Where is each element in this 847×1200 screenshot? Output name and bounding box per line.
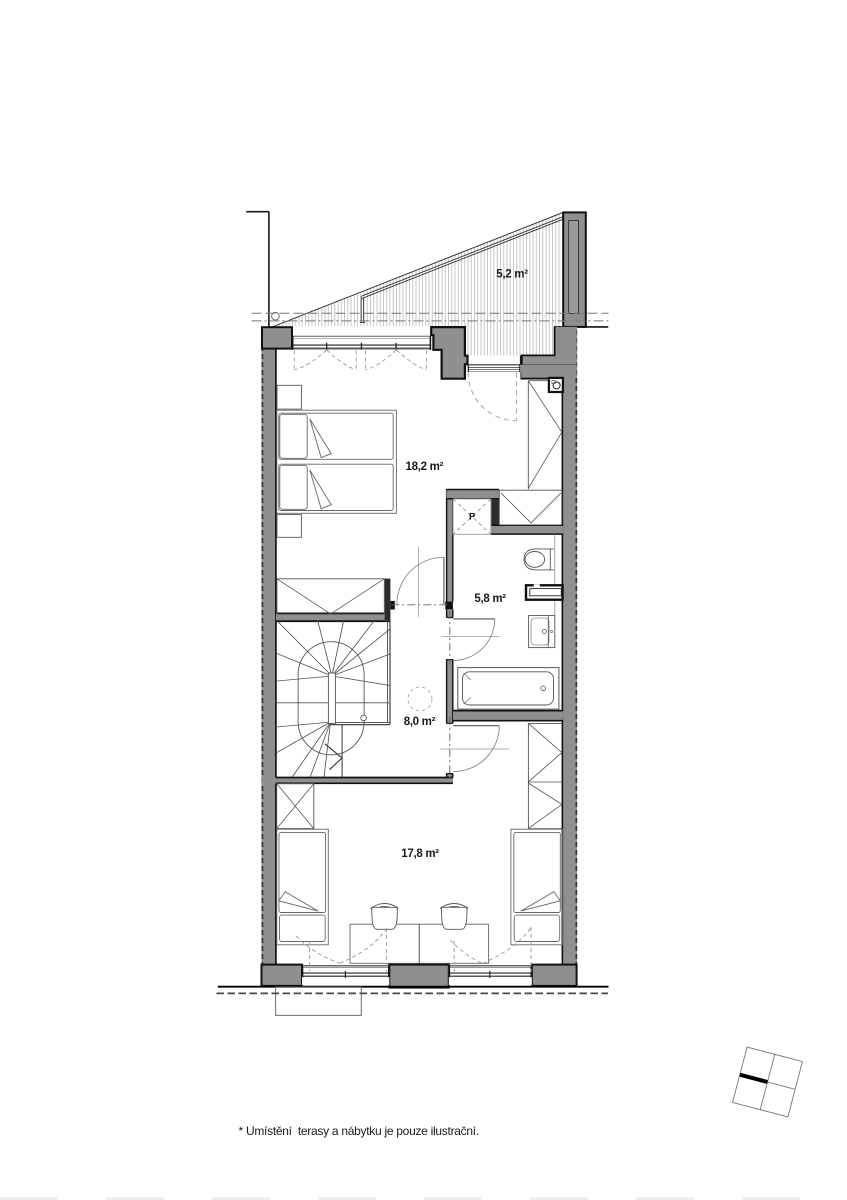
svg-text:5,8 m²: 5,8 m²: [474, 593, 506, 605]
svg-text:8,0 m²: 8,0 m²: [404, 716, 436, 728]
svg-text:P: P: [469, 512, 476, 523]
svg-text:5,2 m²: 5,2 m²: [496, 269, 528, 281]
svg-text:17,8 m²: 17,8 m²: [401, 848, 439, 860]
svg-text:18,2 m²: 18,2 m²: [406, 461, 444, 473]
svg-text:* Umístění terasy a nábytku j: * Umístění terasy a nábytku je pouze ilu…: [239, 1124, 479, 1138]
